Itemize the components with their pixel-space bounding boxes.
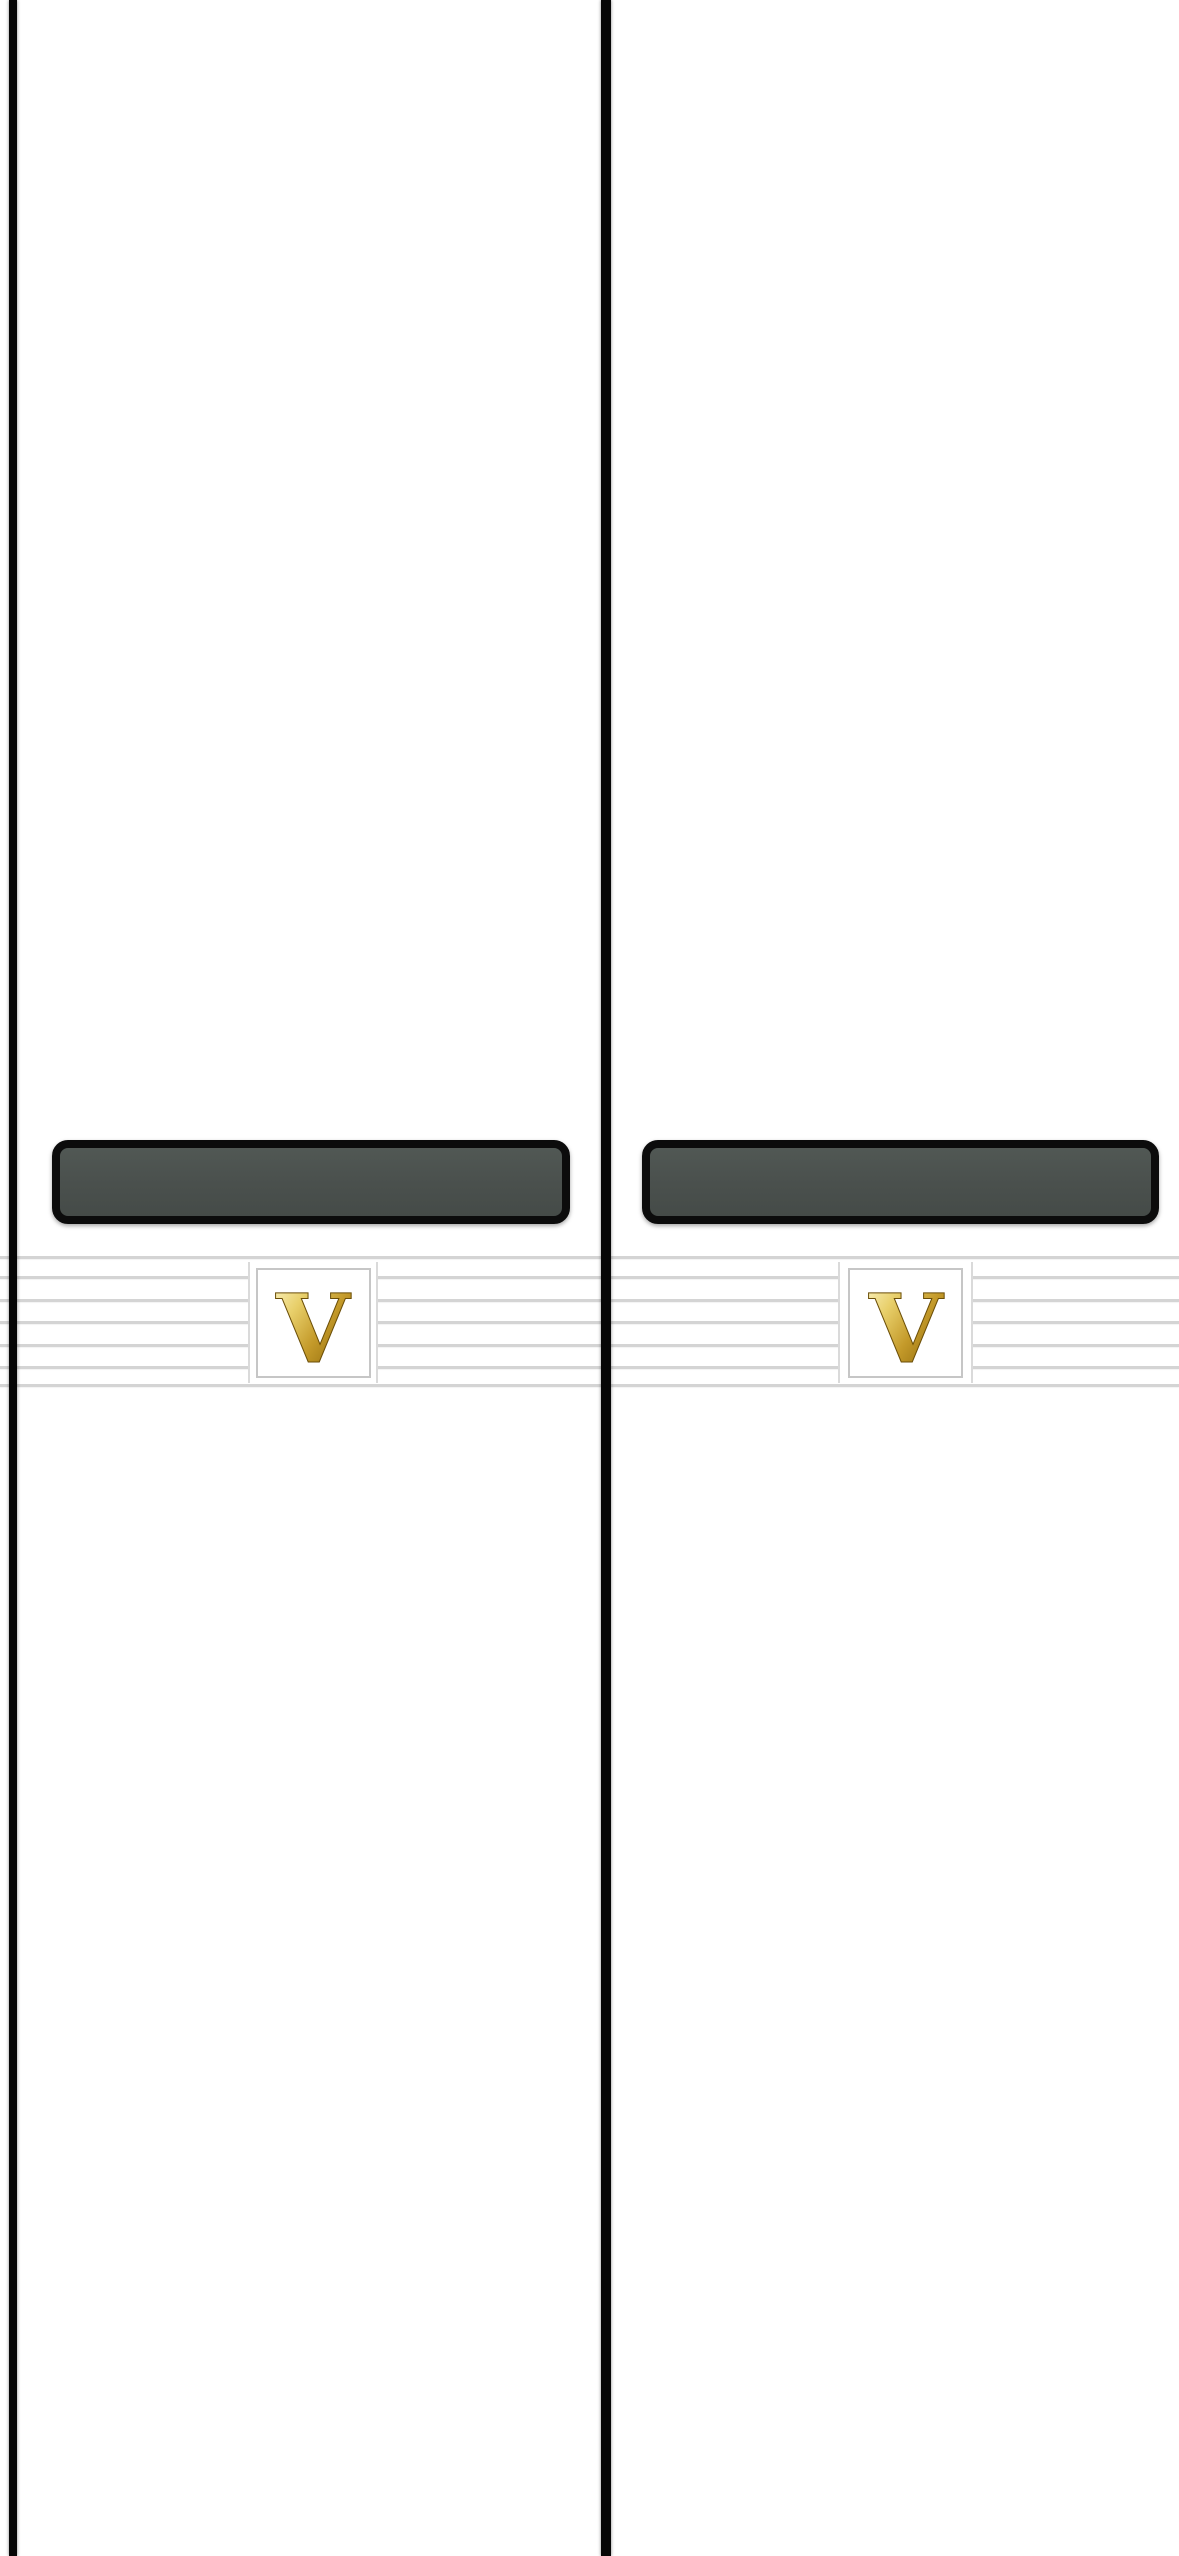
- monogram-frame: V: [256, 1268, 371, 1378]
- gold-letter-v-icon: V: [266, 1278, 360, 1368]
- spine-label-plate-right: [642, 1140, 1159, 1224]
- book-spines-photo: V V: [0, 0, 1179, 2556]
- gilt-rule-line: [0, 1384, 1179, 1387]
- gilt-rule-line: [0, 1321, 1179, 1324]
- monogram-frame: V: [848, 1268, 963, 1378]
- gilt-rule-line: [0, 1276, 1179, 1279]
- spine-divider-line: [601, 0, 611, 2556]
- gilt-rule-line: [0, 1366, 1179, 1369]
- gilt-rule-line: [0, 1299, 1179, 1302]
- gilt-rule-line: [0, 1344, 1179, 1347]
- spine-label-plate-left: [52, 1140, 570, 1224]
- gilt-rule-line: [0, 1256, 1179, 1259]
- monogram-letter: V: [868, 1278, 945, 1368]
- spine-edge-line: [9, 0, 17, 2556]
- monogram-letter: V: [275, 1278, 352, 1368]
- gold-letter-v-icon: V: [859, 1278, 953, 1368]
- monogram-panel-right: V: [838, 1262, 973, 1383]
- monogram-panel-left: V: [248, 1262, 378, 1383]
